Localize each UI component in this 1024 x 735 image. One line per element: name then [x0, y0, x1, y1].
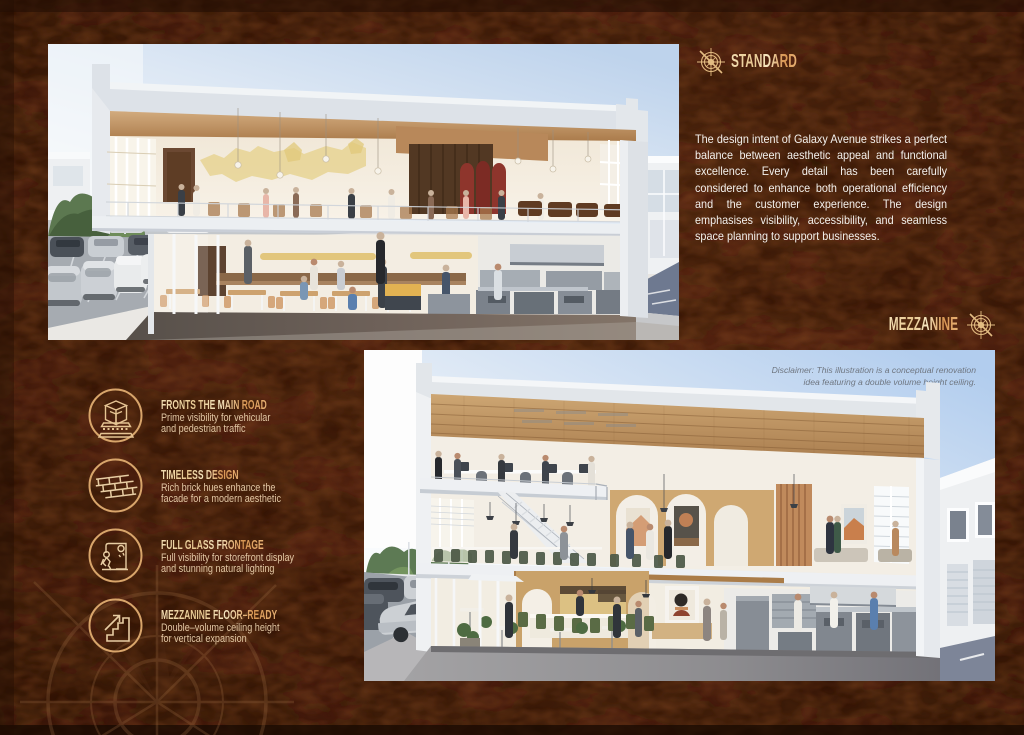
- svg-text:Disclaimer: This illustration: Disclaimer: This illustration is a conce…: [772, 365, 977, 375]
- svg-text:idea featuring a double volume: idea featuring a double volume height ce…: [804, 377, 976, 387]
